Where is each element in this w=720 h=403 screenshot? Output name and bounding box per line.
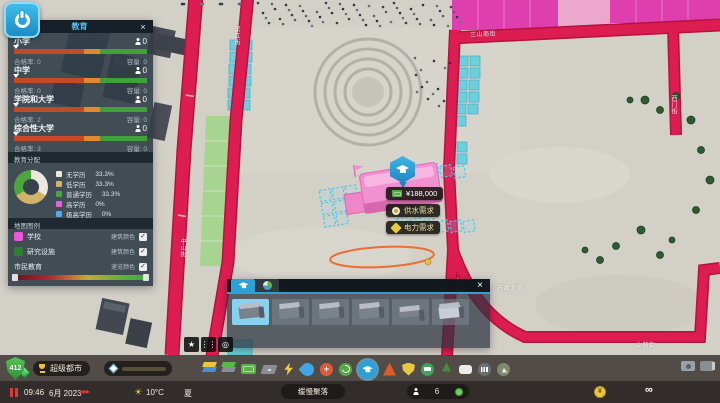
research-icon	[263, 281, 272, 290]
legend-item: 普通学历 33.3%	[56, 189, 147, 199]
water-warning-icon	[392, 207, 400, 215]
education-donut-chart	[14, 170, 48, 204]
water-tool-icon[interactable]	[298, 360, 316, 378]
pause-button[interactable]	[7, 386, 20, 398]
tab-schools[interactable]	[231, 279, 255, 292]
checkbox[interactable]: ✓	[139, 248, 147, 256]
asset-thumbnail[interactable]	[432, 299, 469, 325]
city-name-button[interactable]: 缓慢聚落	[281, 384, 345, 399]
weather-icon: ☀	[134, 387, 142, 398]
fire-rescue-tool-icon[interactable]	[383, 363, 396, 376]
zone-pink	[558, 0, 612, 27]
legend-row-research: 研究设施 建筑颜色 ✓	[8, 244, 153, 259]
availability-bar	[14, 49, 147, 54]
bulldozer-icon[interactable]	[700, 361, 714, 371]
trophy-icon	[38, 364, 46, 373]
research-swatch	[14, 247, 23, 256]
landscaping-tool-icon[interactable]	[497, 363, 510, 376]
xp-progress[interactable]	[104, 361, 172, 376]
school-row-university: 综合性大学 0 合格率: 3 容量: 0	[8, 120, 153, 149]
population-indicator[interactable]: 6	[407, 384, 469, 399]
game-date: 6月 2023	[49, 388, 81, 399]
placement-options: ★ ⋮⋮ ◎	[184, 337, 233, 352]
availability-bar	[14, 107, 147, 112]
map-layers-icon[interactable]	[222, 362, 235, 373]
services-toolbar: +	[241, 359, 510, 379]
money-icon	[392, 190, 402, 197]
asset-thumbnail[interactable]	[312, 299, 349, 325]
main-menu-button[interactable]	[4, 2, 40, 38]
power-icon	[15, 13, 30, 28]
theme-globe-button[interactable]: ◎	[218, 337, 233, 352]
legend-item: 高学历 0%	[56, 199, 147, 209]
legend-row-citizen-education: 市民教育 速览颜色 ✓	[8, 259, 153, 286]
electricity-warning-icon	[390, 222, 401, 233]
season: 夏	[184, 388, 192, 399]
person-icon	[413, 388, 419, 395]
street-label: 三山南街	[470, 29, 496, 39]
close-icon[interactable]: ×	[474, 279, 486, 292]
economy-tool-icon[interactable]	[478, 363, 491, 376]
xp-progress-bar	[122, 367, 166, 371]
placement-cost: ¥188,000	[386, 187, 443, 200]
checkbox[interactable]: ✓	[139, 233, 147, 241]
schools-swatch	[14, 232, 23, 241]
asset-selection-panel: ×	[227, 279, 490, 348]
parks-tool-icon[interactable]	[440, 363, 453, 376]
tab-research[interactable]	[255, 279, 279, 292]
section-map-legend: 地图图例	[8, 218, 153, 229]
healthcare-tool-icon[interactable]: +	[320, 363, 333, 376]
communications-tool-icon[interactable]	[459, 365, 472, 374]
person-icon	[135, 38, 141, 45]
street-label: 西门街	[669, 95, 678, 115]
temperature: 10°C	[146, 388, 164, 397]
status-bar: 412 超级都市 +	[0, 355, 720, 403]
legend-item: 低学历 33.3%	[56, 179, 147, 189]
checkbox[interactable]: ✓	[139, 263, 147, 271]
game-time: 09:46	[24, 388, 44, 397]
school-row-highschool: 中学 0 合格率: 0 容量: 0	[8, 62, 153, 91]
close-icon[interactable]: ×	[138, 22, 148, 32]
graduation-cap-icon	[396, 165, 409, 174]
legend-row-schools: 学校 建筑颜色 ✓	[8, 229, 153, 244]
happiness-icon	[455, 388, 463, 396]
milestone-button[interactable]: 超级都市	[33, 361, 90, 376]
legend-item: 极高学历 0%	[56, 209, 147, 219]
asset-thumbnail[interactable]	[272, 299, 309, 325]
street-label: 石湖大道	[497, 283, 523, 292]
person-icon	[135, 96, 141, 103]
police-tool-icon[interactable]	[402, 363, 415, 376]
roads-tool-icon[interactable]	[261, 365, 278, 374]
garbage-tool-icon[interactable]	[339, 363, 352, 376]
favorite-star-button[interactable]: ★	[184, 337, 199, 352]
placement-warning-water: 供水需求	[386, 204, 440, 217]
education-gradient-bar	[14, 275, 147, 280]
graduation-cap-icon	[238, 282, 248, 289]
person-icon	[135, 125, 141, 132]
education-info-panel: 教育 × 小学 0 合格率: 0 容量: 0 中学 0 合格率: 0 容量: 0	[8, 20, 153, 286]
street-label: 滨江街	[232, 26, 241, 46]
zone-magenta-1	[452, 0, 558, 30]
asset-thumbnail[interactable]	[392, 299, 429, 325]
street-label: 中山街	[178, 238, 187, 258]
education-tool-icon-selected[interactable]	[358, 360, 377, 379]
photo-mode-icon[interactable]	[681, 361, 695, 371]
asset-thumbnail-selected[interactable]	[232, 299, 269, 325]
street-label: 山前街	[636, 340, 656, 349]
availability-bar	[14, 136, 147, 141]
speed-controls[interactable]: ▸▸▸	[80, 387, 89, 396]
legend-item: 无学历 33.3%	[56, 169, 147, 179]
map-tiles-icon[interactable]	[203, 362, 216, 373]
transportation-tool-icon[interactable]	[421, 363, 434, 376]
asset-thumbnail[interactable]	[352, 299, 389, 325]
section-distribution: 教育分配	[8, 152, 153, 163]
school-row-college: 学院和大学 0 合格率: 2 容量: 0	[8, 91, 153, 120]
placement-warning-power: 电力需求	[386, 221, 440, 234]
person-icon	[135, 67, 141, 74]
availability-bar	[14, 78, 147, 83]
unlimited-money-indicator: ∞	[645, 384, 653, 396]
money-coin-icon[interactable]: ¥	[594, 386, 606, 398]
xp-icon	[109, 364, 119, 374]
electricity-tool-icon[interactable]	[282, 363, 295, 376]
zoning-tool-icon[interactable]	[241, 364, 256, 374]
snap-options-button[interactable]: ⋮⋮	[201, 337, 216, 352]
game-screen: 滨江街 三山南街 西门街 石湖大道 山前街 中山街 ¥188,000 供水需求 …	[0, 0, 720, 403]
